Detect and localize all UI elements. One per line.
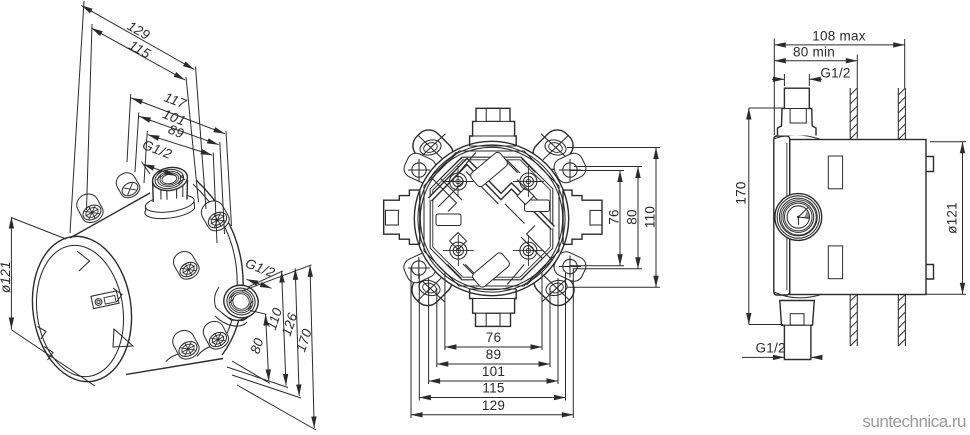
svg-text:80 min: 80 min [793,45,835,60]
svg-text:suntechnica.ru: suntechnica.ru [862,412,966,431]
svg-text:G1/2: G1/2 [243,256,277,281]
svg-text:108 max: 108 max [812,29,866,44]
svg-text:89: 89 [486,347,502,362]
svg-text:76: 76 [607,209,622,225]
svg-text:110: 110 [643,206,658,228]
svg-text:ø121: ø121 [0,261,13,293]
svg-text:129: 129 [482,398,505,413]
svg-text:115: 115 [482,381,504,396]
svg-text:170: 170 [734,181,749,204]
svg-text:G1/2: G1/2 [820,66,850,81]
svg-text:ø121: ø121 [945,202,960,234]
svg-text:80: 80 [247,336,266,356]
svg-text:G1/2: G1/2 [756,341,786,356]
svg-text:129: 129 [125,18,153,43]
svg-text:170: 170 [293,327,315,354]
svg-text:101: 101 [482,364,505,379]
svg-text:80: 80 [625,209,640,225]
svg-text:115: 115 [126,38,153,62]
svg-text:76: 76 [486,330,502,345]
